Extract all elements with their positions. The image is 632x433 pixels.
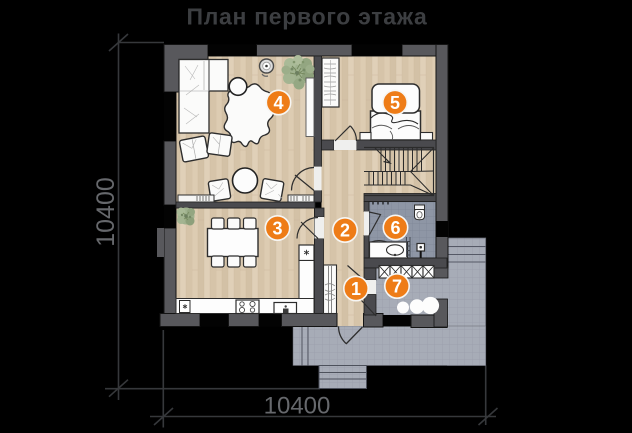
svg-text:2: 2 bbox=[340, 220, 350, 240]
svg-text:План первого этажа: План первого этажа bbox=[187, 4, 428, 30]
svg-text:10400: 10400 bbox=[264, 392, 331, 419]
svg-text:4: 4 bbox=[273, 93, 283, 113]
svg-text:3: 3 bbox=[272, 218, 282, 238]
svg-text:7: 7 bbox=[392, 276, 402, 296]
svg-text:5: 5 bbox=[390, 93, 400, 113]
svg-text:6: 6 bbox=[390, 218, 400, 238]
svg-text:10400: 10400 bbox=[92, 177, 120, 247]
svg-text:1: 1 bbox=[351, 279, 361, 299]
